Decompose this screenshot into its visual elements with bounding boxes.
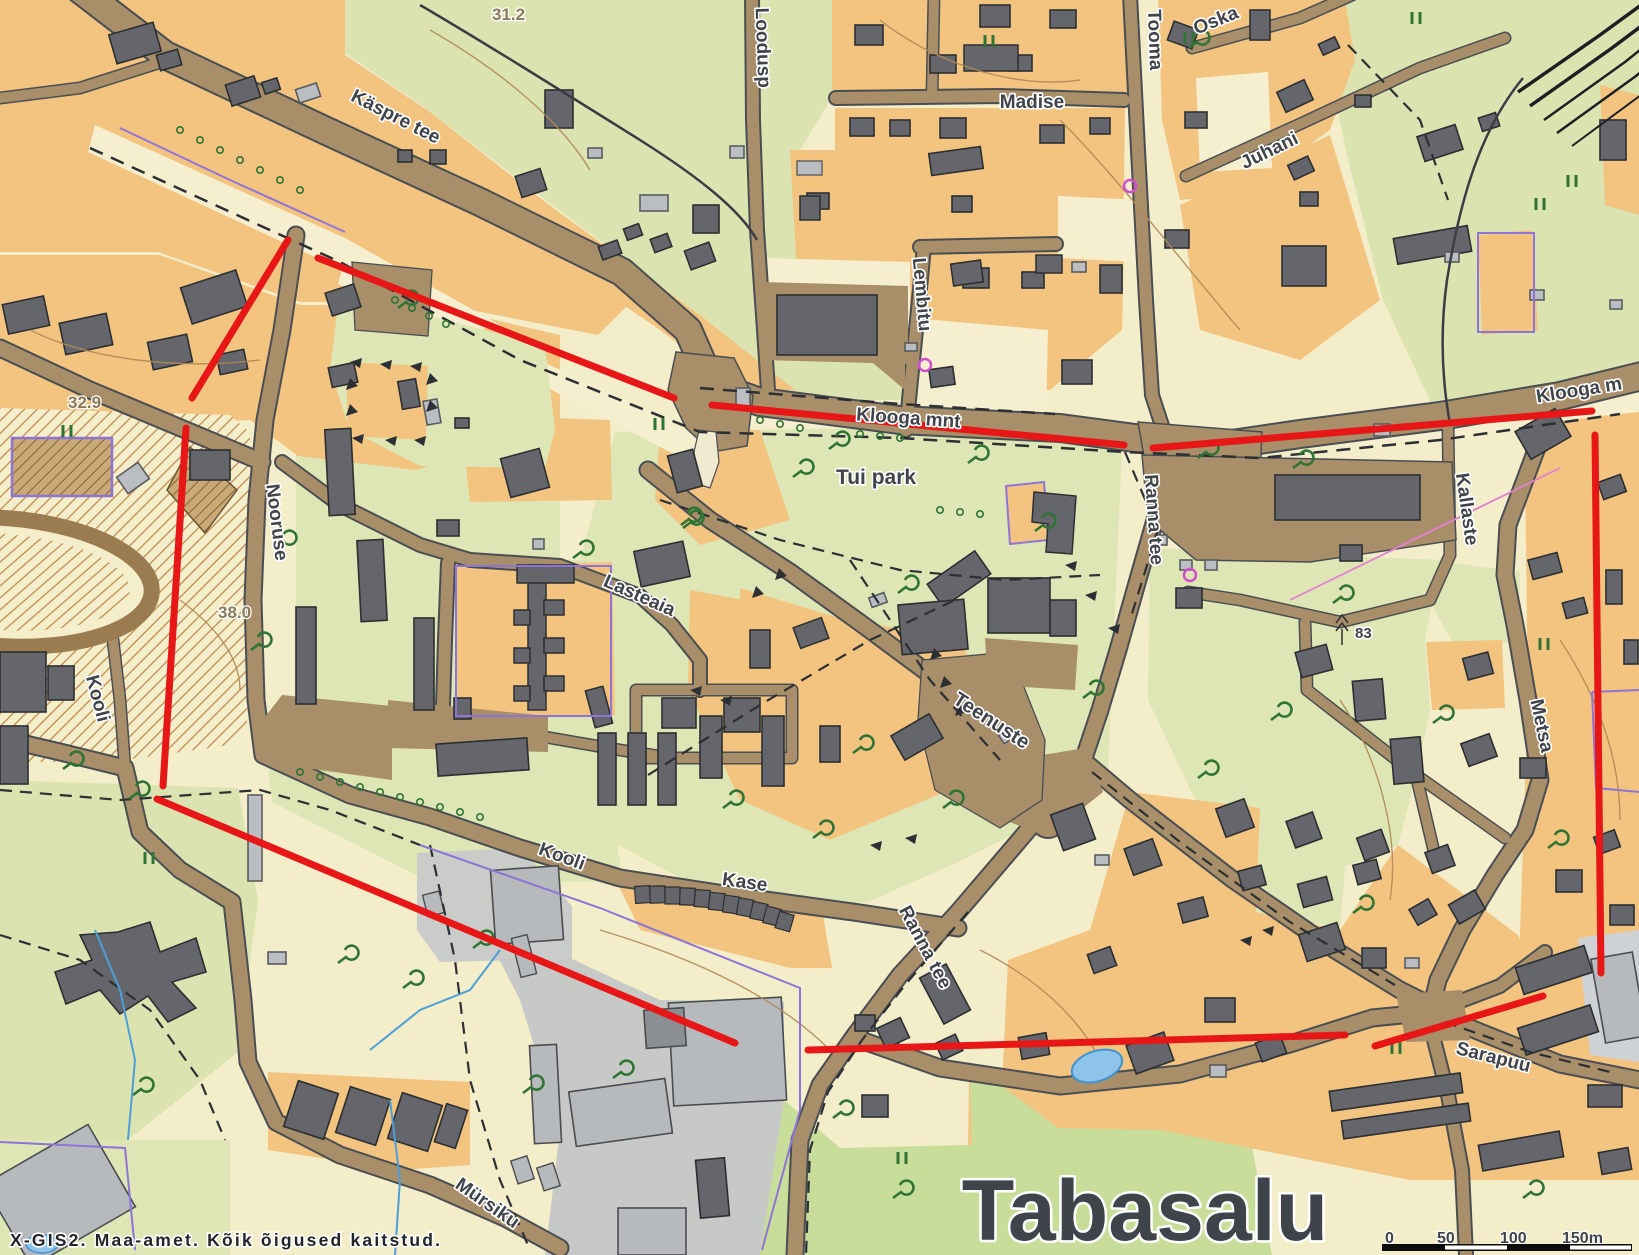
svg-text:31.2: 31.2 [492,5,525,24]
svg-text:Madise: Madise [1000,92,1064,113]
svg-text:Tabasalu: Tabasalu [962,1163,1328,1255]
svg-text:32.9: 32.9 [68,393,101,412]
svg-text:38.0: 38.0 [218,603,251,622]
svg-text:Tui park: Tui park [836,466,916,489]
svg-text:Tooma: Tooma [1143,9,1166,71]
svg-text:Loodusp: Loodusp [751,7,775,88]
svg-text:X-GIS2. Maa-amet. Kõik õigused: X-GIS2. Maa-amet. Kõik õigused kaitstud. [10,1230,442,1250]
svg-text:83: 83 [1355,625,1372,642]
